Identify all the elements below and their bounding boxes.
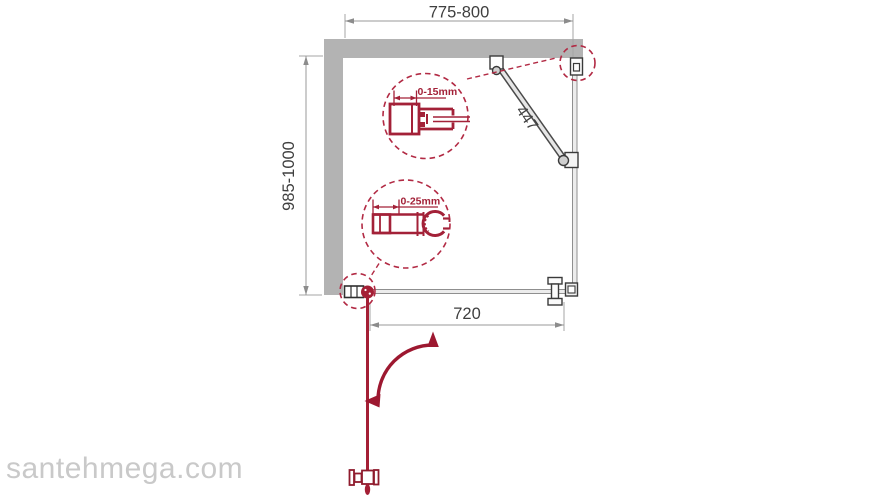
dimension-left-label: 985-1000	[280, 141, 298, 211]
door-knob-flange-bottom	[548, 299, 562, 306]
swing-arrowhead-up	[427, 332, 439, 348]
glass-panels	[371, 58, 577, 294]
detail-arrowhead	[373, 205, 379, 210]
wall-profile	[345, 286, 364, 298]
profile-section-outer	[390, 104, 419, 134]
glass-door-closed	[371, 290, 577, 294]
detail-glass-holder: 0-25mm	[373, 196, 450, 237]
door-knob-flange-top	[548, 278, 562, 285]
profile-tooth	[420, 112, 425, 117]
door-knob-stem	[552, 284, 559, 299]
detail-arrowhead	[394, 96, 400, 101]
arrowhead-up	[303, 56, 308, 65]
handle-flange-left	[350, 470, 355, 485]
dimension-top-label: 775-800	[429, 4, 490, 22]
handle-stem-left	[355, 474, 362, 483]
detail-wall-profile: 0-15mm	[390, 86, 470, 134]
door-edge-tip	[365, 484, 370, 495]
corner-bracket-inner	[568, 286, 575, 293]
arrowhead-left	[345, 18, 354, 23]
arrowhead-left	[370, 322, 379, 327]
arrowhead-right	[555, 322, 564, 327]
support-bar: 447	[490, 56, 578, 168]
watermark: santehmega.com	[6, 452, 243, 486]
callout-circles	[340, 46, 595, 309]
wall-top	[324, 39, 583, 58]
dimension-bottom-label: 720	[453, 305, 481, 323]
glass-bracket-pivot	[559, 156, 569, 166]
detail-label-wall-profile: 0-15mm	[418, 86, 458, 98]
detail-arrowhead	[393, 205, 399, 210]
detail-arrowhead	[411, 96, 417, 101]
hinge-screw	[364, 289, 366, 291]
handle-flange-right	[374, 470, 379, 485]
shower-enclosure-technical-drawing: 775-800 985-1000 720	[0, 0, 880, 500]
callout-circle-glass-holder	[362, 180, 450, 268]
glass-side-panel	[573, 58, 578, 291]
dimension-bottom-door: 720	[370, 302, 564, 331]
arrowhead-down	[303, 286, 308, 295]
mount-body	[571, 58, 583, 75]
support-bar-label: 447	[512, 103, 541, 134]
handle-body-right	[362, 471, 374, 485]
detail-label-glass-holder: 0-25mm	[401, 196, 441, 208]
swing-arc	[378, 345, 433, 400]
clamp-ring	[423, 212, 444, 236]
holder-block	[373, 215, 390, 234]
arrowhead-right	[564, 18, 573, 23]
top-right-wall-mount	[571, 58, 583, 75]
callout-leader-bottom	[371, 264, 379, 277]
drawing-svg: 775-800 985-1000 720	[0, 0, 880, 500]
wall-left	[324, 39, 343, 295]
callout-leader-top	[467, 58, 558, 80]
hinge-screw	[369, 293, 371, 295]
walls	[324, 39, 583, 295]
profile-tooth	[420, 122, 425, 127]
dimension-left-depth: 985-1000	[280, 56, 323, 295]
door-handle	[350, 470, 379, 485]
wall-profile-and-hinge	[345, 286, 375, 299]
door-swing-arrow	[365, 332, 439, 408]
